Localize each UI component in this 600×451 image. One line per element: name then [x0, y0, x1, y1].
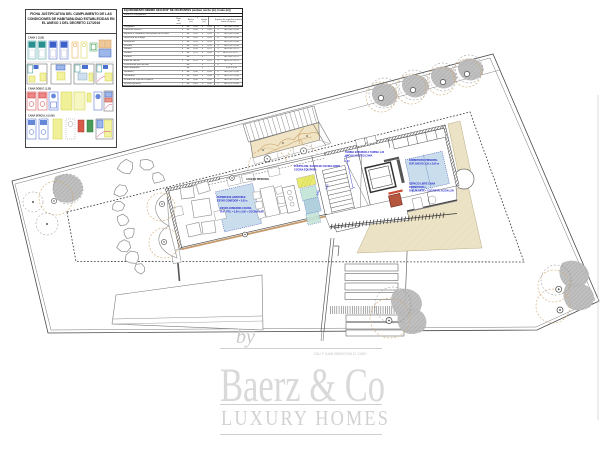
svg-text:SUP.,ANCHO 3,20 x 3,60 m: SUP.,ANCHO 3,20 x 3,60 m: [409, 163, 439, 166]
svg-text:CAMA 1 (1,80): CAMA 1 (1,80): [28, 37, 44, 40]
svg-text:SUP. PLANTA = 3,20 INSTALACION: SUP. PLANTA = 3,20 INSTALACION 2,50: [409, 190, 455, 193]
svg-text:ACCESO PRINCIPAL: ACCESO PRINCIPAL: [246, 178, 270, 181]
svg-text:COCINA EQUIPADA: COCINA EQUIPADA: [294, 169, 317, 172]
svg-text:ESTAR COMEDOR = 3,00 x: ESTAR COMEDOR = 3,00 x: [217, 200, 248, 203]
svg-text:CAMA SENCILLA (0,90): CAMA SENCILLA (0,90): [28, 115, 55, 118]
svg-text:SUP. ÚTIL = 3,00 x 3,00 + COCI: SUP. ÚTIL = 3,00 x 3,00 + COCINA 1,80: [220, 211, 264, 214]
svg-text:CAMA DOBLE (1,35): CAMA DOBLE (1,35): [28, 88, 51, 91]
svg-text:1,20: 1,20: [344, 159, 350, 163]
svg-text:ANCHO ACCESO,CAMA: ANCHO ACCESO,CAMA: [345, 155, 373, 158]
